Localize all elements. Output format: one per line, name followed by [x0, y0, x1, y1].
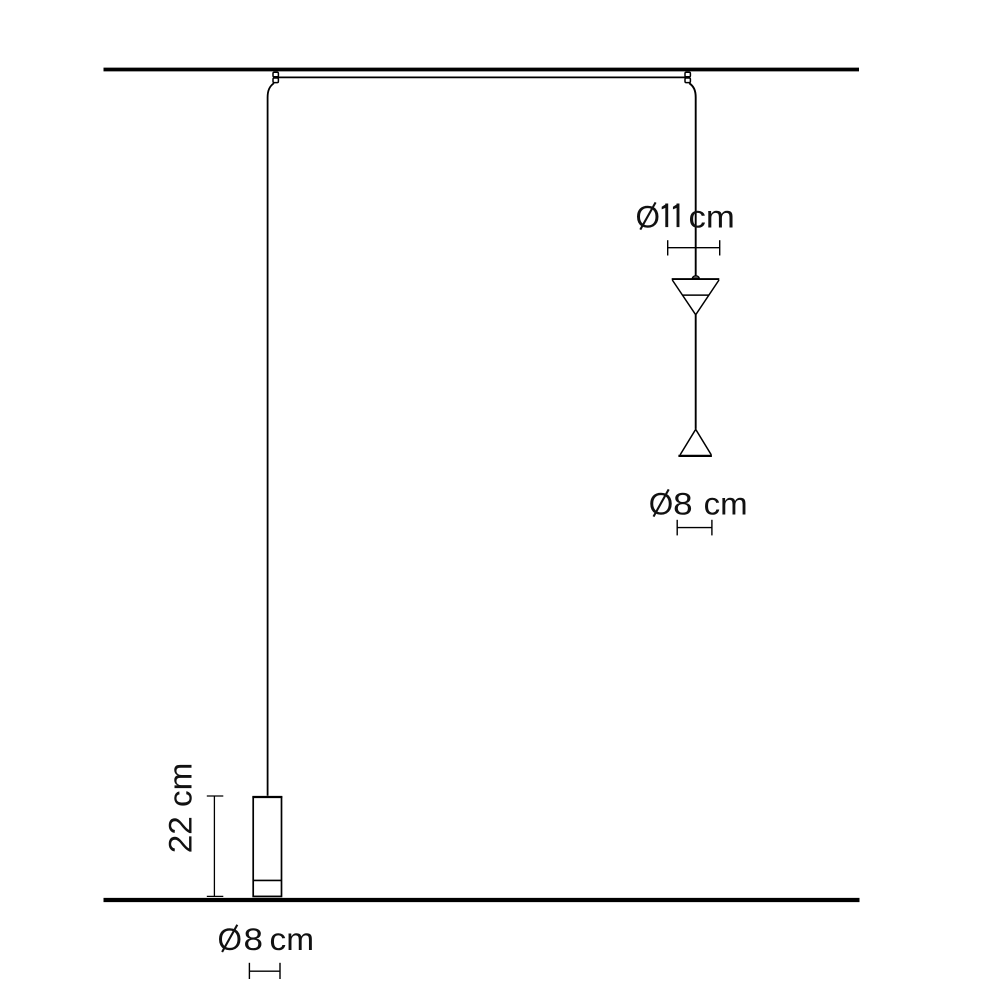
- svg-text:22 cm: 22 cm: [162, 763, 198, 854]
- svg-text:8: 8: [244, 921, 264, 957]
- svg-text:cm: cm: [689, 199, 735, 235]
- svg-text:cm: cm: [704, 485, 748, 521]
- svg-text:cm: cm: [270, 921, 315, 957]
- svg-text:8: 8: [673, 485, 693, 521]
